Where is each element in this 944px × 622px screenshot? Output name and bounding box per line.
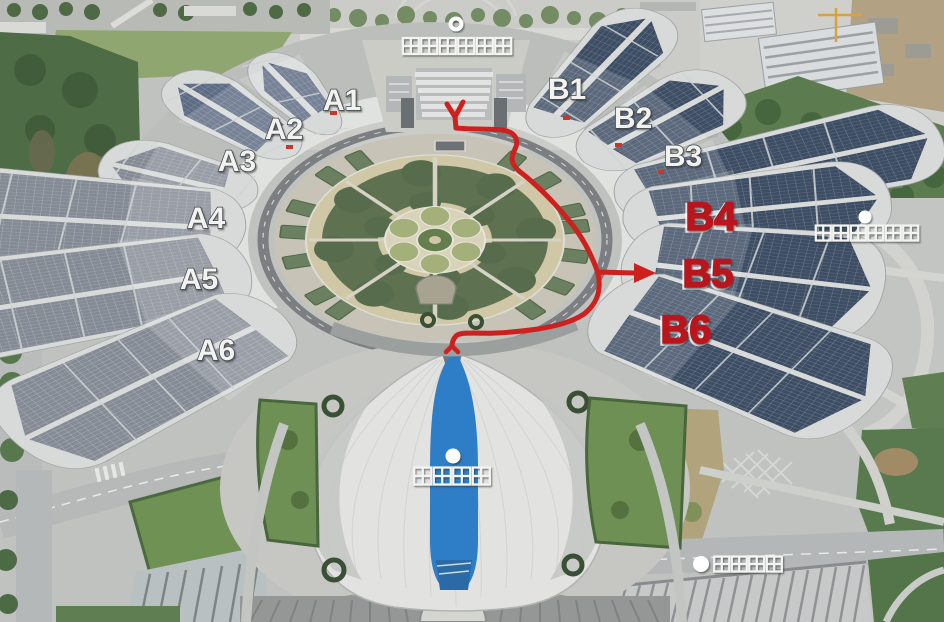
svg-text:A6: A6 [197,334,235,367]
svg-text:B6: B6 [660,308,711,352]
svg-text:A5: A5 [180,263,218,296]
svg-text:B3: B3 [664,140,702,173]
svg-text:B1: B1 [548,73,586,106]
svg-text:A3: A3 [218,145,256,178]
svg-text:B5: B5 [682,252,733,296]
svg-text:A1: A1 [323,84,361,117]
svg-text:B4: B4 [685,195,737,239]
svg-text:A4: A4 [187,202,226,235]
svg-text:A2: A2 [265,113,303,146]
svg-text:B2: B2 [614,102,652,135]
